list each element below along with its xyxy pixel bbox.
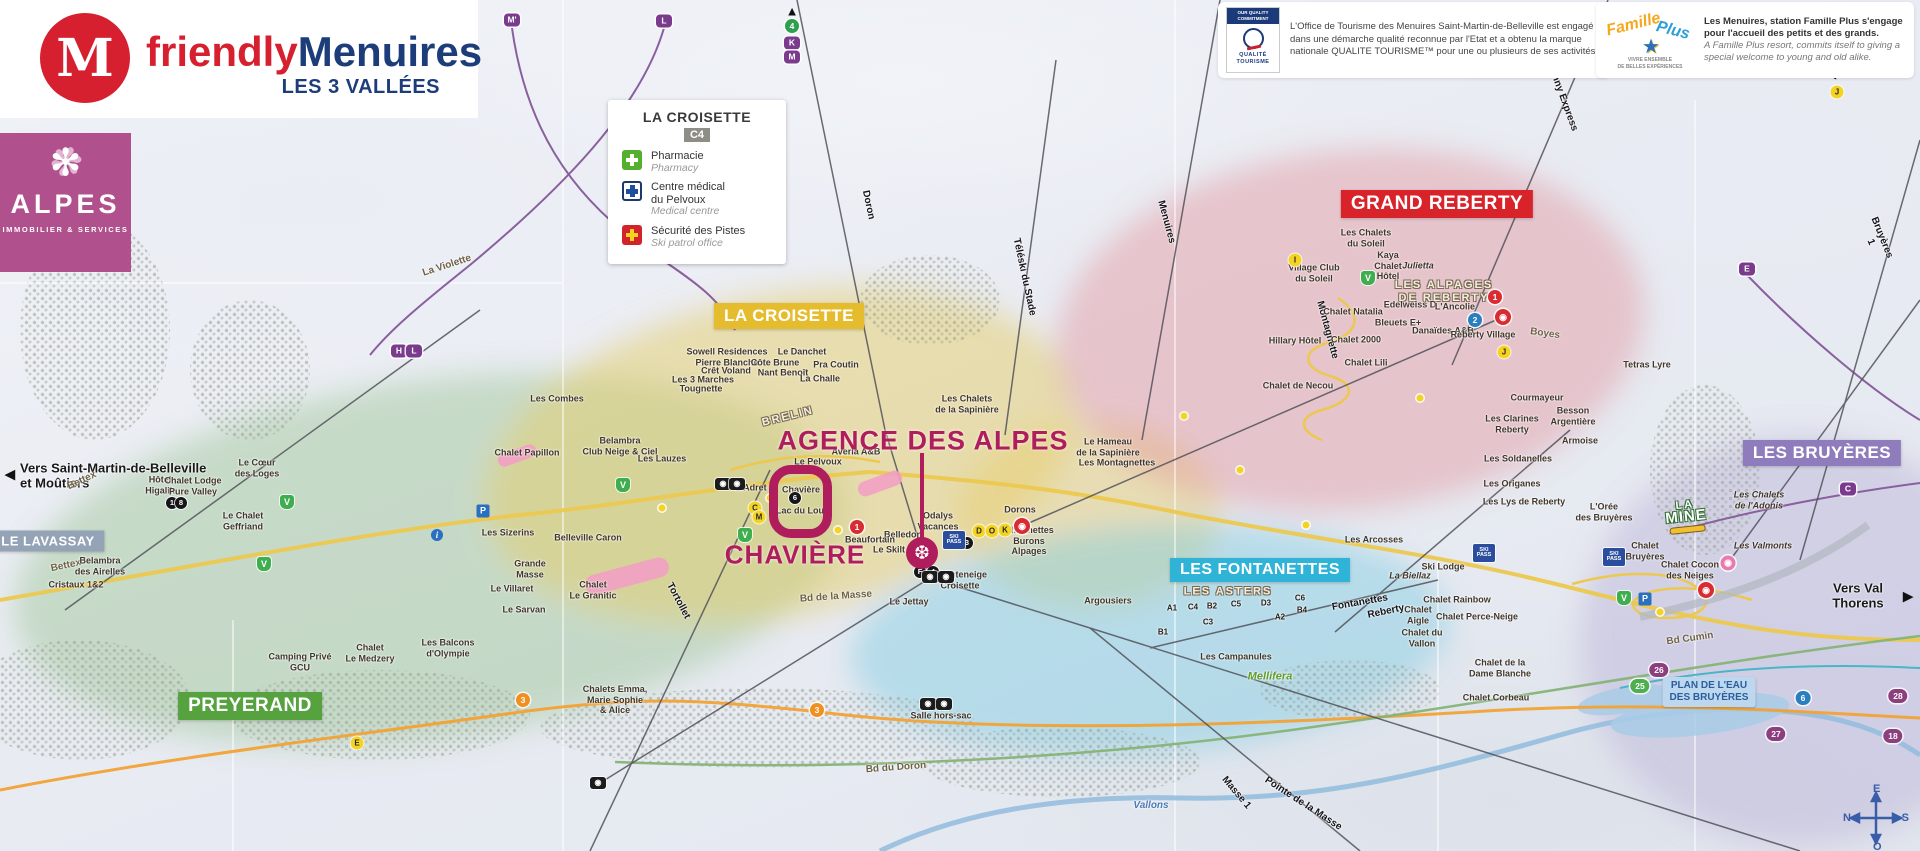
brand-menuires: Menuires: [298, 28, 482, 75]
la-mine-text-2: MINE: [1665, 508, 1708, 527]
plan-de-leau-label: PLAN DE L'EAU DES BRUYÈRES: [1663, 677, 1756, 707]
famille-plus-logo: Famille Plus ★ VIVRE ENSEMBLE DE BELLES …: [1604, 8, 1696, 72]
quality-commitment-label: OUR QUALITY COMMITMENT: [1227, 8, 1279, 24]
qualite-circle-icon: [1243, 28, 1264, 49]
snowflake-icon: ❆: [914, 542, 930, 565]
qualite-tourisme-logo: OUR QUALITY COMMITMENT QUALITÉ TOURISME: [1226, 7, 1280, 73]
brand-card: M friendlyMenuires LES 3 VALLÉES: [0, 0, 478, 118]
legend-items: Pharmacie Pharmacy Centre médical du Pel…: [608, 143, 786, 249]
legend-grid-ref: C4: [684, 128, 710, 142]
compass-s: S: [1902, 812, 1909, 824]
legend-label-en: Medical centre: [651, 206, 725, 218]
alpes-title: ALPES: [0, 191, 131, 218]
legend-item: Sécurité des Pistes Ski patrol office: [622, 225, 786, 249]
compass-e: E: [1873, 783, 1880, 795]
agency-marker: ❆: [906, 537, 938, 569]
medical-cross-icon: [622, 181, 642, 201]
legend-label-fr: Sécurité des Pistes: [651, 225, 745, 238]
la-mine-logo: LA MINE: [1664, 498, 1709, 534]
brand-title: friendlyMenuires: [146, 28, 482, 76]
ski-patrol-cross-icon: [622, 225, 642, 245]
legend-label-en: Pharmacy: [651, 163, 704, 175]
legend-label-fr: Pharmacie: [651, 150, 704, 163]
legend-label-fr: Centre médical du Pelvoux: [651, 181, 725, 206]
quality-tourism-card: OUR QUALITY COMMITMENT QUALITÉ TOURISME …: [1218, 2, 1610, 78]
brand-tagline: LES 3 VALLÉES: [282, 76, 440, 99]
qualite-tourisme-label: QUALITÉ TOURISME: [1227, 52, 1279, 66]
legend-card: LA CROISETTE C4 Pharmacie Pharmacy Centr…: [608, 100, 786, 264]
compass-o: O: [1873, 841, 1882, 851]
agency-pointer-line: [920, 453, 924, 539]
legend-title: LA CROISETTE: [608, 109, 786, 125]
agency-highlight-box: [769, 465, 832, 538]
alpes-logo: ✻ ✻: [0, 133, 131, 191]
agency-name-label: AGENCE DES ALPES: [777, 426, 1068, 457]
alpes-subtitle: IMMOBILIER & SERVICES: [0, 225, 131, 234]
resort-map: Vers Saint-Martin-de-Belleville et Moûti…: [0, 0, 1920, 851]
legend-item: Pharmacie Pharmacy: [622, 150, 786, 174]
compass-n: N: [1843, 812, 1851, 824]
quality-text: L'Office de Tourisme des Menuires Saint-…: [1290, 21, 1602, 58]
menuires-logo-letter: M: [56, 28, 114, 89]
famille-logo-subtitle: VIVRE ENSEMBLE DE BELLES EXPÉRIENCES: [1604, 57, 1696, 70]
compass-rose: E S O N: [1841, 783, 1911, 851]
plus-logo-text: Plus: [1655, 18, 1692, 44]
snowflake-icon: ✻: [50, 141, 82, 186]
famille-text-en: A Famille Plus resort, commits itself to…: [1704, 40, 1906, 64]
famille-plus-card: Famille Plus ★ VIVRE ENSEMBLE DE BELLES …: [1596, 2, 1914, 78]
district-chaviere-label: CHAVIÈRE: [725, 540, 865, 571]
pharmacy-cross-icon: [622, 150, 642, 170]
alpes-card: ✻ ✻ ALPES IMMOBILIER & SERVICES: [0, 133, 131, 272]
brand-friendly: friendly: [146, 28, 298, 75]
menuires-logo: M: [40, 13, 130, 103]
legend-item: Centre médical du Pelvoux Medical centre: [622, 181, 786, 218]
famille-text-fr: Les Menuires, station Famille Plus s'eng…: [1704, 16, 1906, 40]
star-icon: ★: [1642, 34, 1660, 59]
legend-label-en: Ski patrol office: [651, 238, 745, 250]
